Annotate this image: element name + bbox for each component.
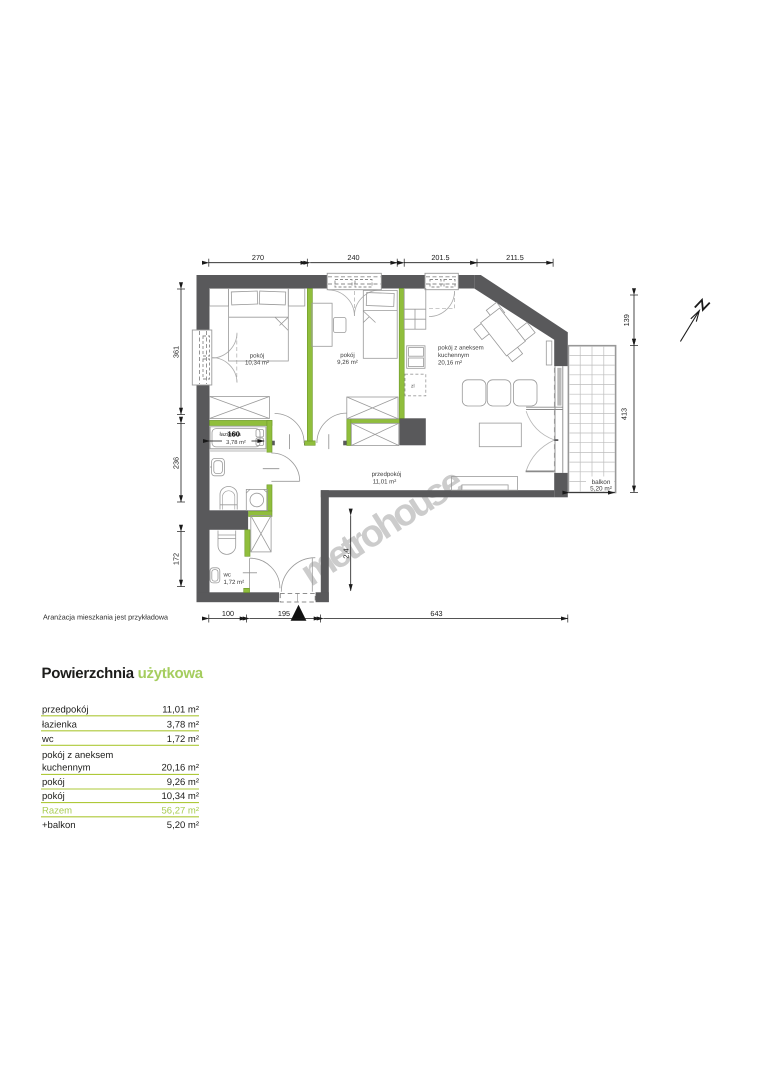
svg-text:zl: zl: [411, 384, 415, 390]
svg-text:przedpokój: przedpokój: [372, 471, 402, 478]
svg-text:413: 413: [620, 408, 629, 420]
svg-text:pokój: pokój: [42, 791, 65, 802]
svg-text:100: 100: [222, 609, 234, 618]
svg-text:9,26 m²: 9,26 m²: [337, 359, 358, 366]
svg-text:wc: wc: [223, 572, 231, 579]
svg-text:20,16 m²: 20,16 m²: [438, 360, 462, 367]
svg-text:240: 240: [347, 253, 359, 262]
svg-text:Aranżacja mieszkania jest przy: Aranżacja mieszkania jest przykładowa: [43, 613, 168, 622]
svg-text:201.5: 201.5: [431, 253, 449, 262]
svg-text:Powierzchnia użytkowa: Powierzchnia użytkowa: [42, 665, 204, 682]
svg-text:56,27 m²: 56,27 m²: [162, 805, 200, 816]
svg-text:pokój: pokój: [42, 777, 65, 788]
svg-text:2,4: 2,4: [341, 548, 350, 558]
svg-text:+balkon: +balkon: [42, 820, 76, 831]
svg-text:211.5: 211.5: [506, 253, 524, 262]
svg-text:przedpokój: przedpokój: [42, 705, 88, 716]
svg-text:3,78 m²: 3,78 m²: [226, 439, 246, 446]
svg-text:kuchennym: kuchennym: [42, 763, 91, 774]
svg-text:1,72 m²: 1,72 m²: [167, 734, 199, 745]
svg-text:pokój: pokój: [340, 352, 355, 359]
svg-text:195: 195: [278, 609, 290, 618]
svg-text:172: 172: [172, 553, 181, 565]
svg-text:643: 643: [430, 609, 442, 618]
svg-text:11,01 m²: 11,01 m²: [373, 479, 397, 486]
svg-text:3,78 m²: 3,78 m²: [167, 719, 199, 730]
svg-text:Razem: Razem: [42, 805, 72, 816]
svg-text:10,34 m²: 10,34 m²: [245, 360, 269, 367]
svg-text:5,20 m²: 5,20 m²: [590, 486, 612, 493]
svg-text:236: 236: [172, 457, 181, 469]
svg-text:20,16 m²: 20,16 m²: [162, 763, 200, 774]
svg-text:5,20 m²: 5,20 m²: [167, 820, 199, 831]
svg-text:361: 361: [172, 346, 181, 358]
svg-text:9,26 m²: 9,26 m²: [167, 777, 199, 788]
svg-text:łazienka: łazienka: [42, 719, 78, 730]
svg-text:270: 270: [252, 253, 264, 262]
svg-text:wc: wc: [41, 734, 54, 745]
svg-text:pokój z aneksem: pokój z aneksem: [438, 345, 484, 352]
svg-text:kuchennym: kuchennym: [438, 352, 469, 359]
svg-text:10,34 m²: 10,34 m²: [162, 791, 200, 802]
svg-text:139: 139: [622, 314, 631, 326]
svg-text:pokój z aneksem: pokój z aneksem: [42, 750, 113, 761]
svg-text:160: 160: [228, 430, 240, 439]
svg-text:11,01 m²: 11,01 m²: [162, 705, 199, 716]
svg-text:1,72 m²: 1,72 m²: [224, 579, 245, 586]
svg-text:pokój: pokój: [250, 353, 265, 360]
